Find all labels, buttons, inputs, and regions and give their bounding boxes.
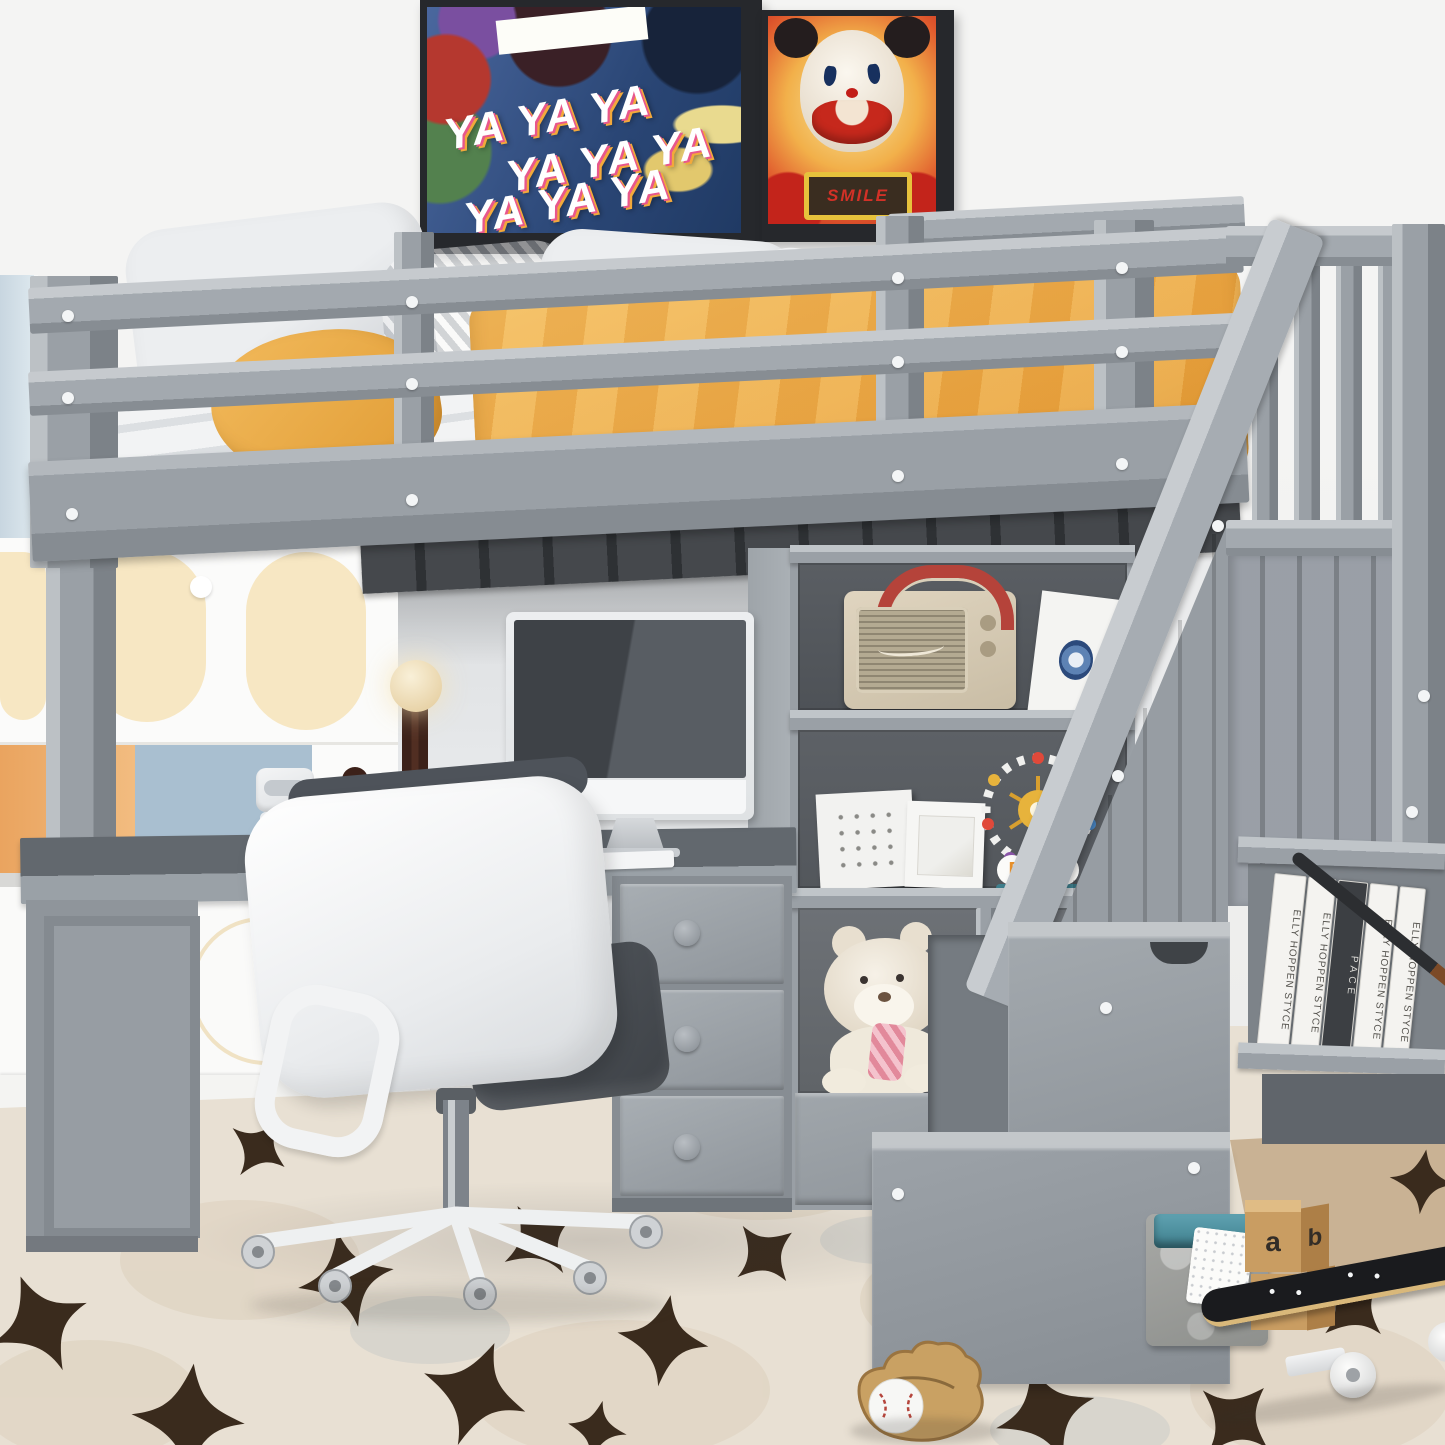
teddy-foot — [822, 1068, 866, 1096]
drawer-knob — [674, 1026, 700, 1052]
radio-knob — [980, 641, 996, 657]
stair-storage-step-upper — [1008, 922, 1230, 936]
icon-grid-art — [832, 806, 899, 873]
radio-knob — [980, 615, 996, 631]
stair-right-post — [1392, 224, 1445, 908]
room-scene: YA YA YA YA YA YA YA YA YA SMILE — [0, 0, 1445, 1445]
ya-poster-art: YA YA YA YA YA YA YA YA YA — [427, 7, 741, 233]
screw-cap — [62, 310, 74, 322]
vintage-radio — [844, 591, 1016, 709]
screw-cap — [892, 470, 904, 482]
block-face-a: a — [1245, 1212, 1301, 1272]
lamp-globe — [390, 660, 442, 712]
desk-leg-inset — [44, 916, 200, 1238]
screw-cap — [1100, 1002, 1112, 1014]
screw-cap — [62, 392, 74, 404]
screw-cap — [1406, 806, 1418, 818]
wardrobe-knob — [190, 576, 212, 598]
screw-cap — [892, 1188, 904, 1200]
smile-bear-poster: SMILE — [762, 10, 954, 242]
deck-bolt — [1347, 1272, 1353, 1278]
storage-handle-cutout — [1150, 942, 1208, 964]
stair-storage-step-lower — [872, 1132, 1230, 1148]
screw-cap — [1418, 690, 1430, 702]
teddy-eye — [896, 974, 904, 982]
bookshelf-lower-cubby — [1262, 1074, 1445, 1144]
monster-teeth-decor — [496, 7, 649, 55]
screw-cap — [406, 296, 418, 308]
bear-nose — [846, 88, 858, 98]
ya-poster: YA YA YA YA YA YA YA YA YA — [420, 0, 762, 254]
picture-frame-icons — [816, 790, 917, 891]
monitor-screen — [514, 620, 746, 778]
bear-smile — [812, 100, 892, 144]
deck-bolt — [1296, 1290, 1302, 1296]
teddy-eye — [860, 976, 868, 984]
smile-sign-text: SMILE — [827, 186, 889, 206]
object-shadow — [850, 1418, 1000, 1444]
screw-cap — [406, 378, 418, 390]
wardrobe-oval-accent — [0, 552, 46, 720]
smile-poster-art: SMILE — [768, 16, 936, 224]
object-shadow — [250, 1288, 670, 1322]
teddy-bow-tie — [867, 1022, 907, 1081]
screw-cap — [406, 494, 418, 506]
drawer-knob — [674, 920, 700, 946]
block-face-b: b — [1301, 1204, 1329, 1273]
deck-bolt — [1269, 1288, 1275, 1294]
drawer-knob — [674, 1134, 700, 1160]
screw-cap — [1116, 346, 1128, 358]
stair-baluster — [1336, 262, 1362, 528]
screw-cap — [1188, 1162, 1200, 1174]
stair-storage-upper-box — [1008, 936, 1230, 1148]
teddy-nose — [878, 992, 891, 1002]
screw-cap — [1116, 262, 1128, 274]
wheel-hub — [1346, 1368, 1360, 1382]
screw-cap — [892, 272, 904, 284]
teddy-muzzle — [854, 984, 914, 1028]
deck-bolt — [1374, 1273, 1380, 1279]
desk-leg-kick — [26, 1236, 198, 1252]
screw-cap — [892, 356, 904, 368]
screw-cap — [1112, 770, 1124, 782]
screw-cap — [1116, 458, 1128, 470]
chair-base — [240, 1080, 670, 1310]
screw-cap — [66, 508, 78, 520]
screw-cap — [1212, 520, 1224, 532]
desk-left-leg-panel — [26, 900, 198, 1252]
